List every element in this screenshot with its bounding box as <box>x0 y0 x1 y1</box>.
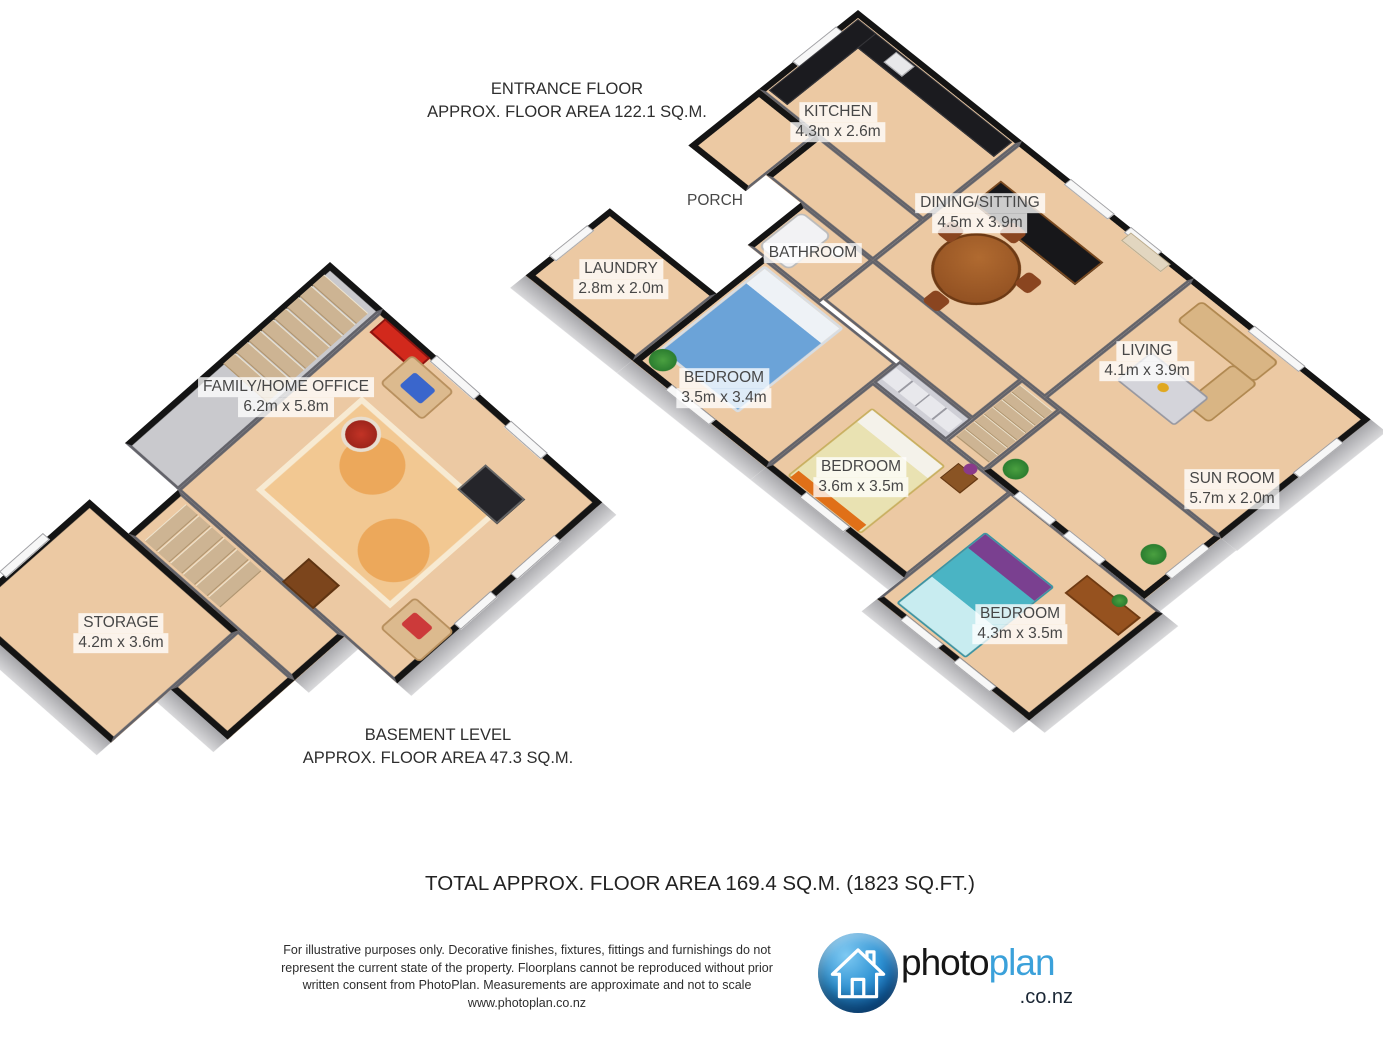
sunroom-label: SUN ROOM5.7m x 2.0m <box>1184 469 1279 509</box>
entrance-floor-title: ENTRANCE FLOOR <box>427 78 707 101</box>
entrance-floor-header: ENTRANCE FLOOR APPROX. FLOOR AREA 122.1 … <box>427 78 707 124</box>
laundry-label: LAUNDRY2.8m x 2.0m <box>573 259 668 299</box>
website-link[interactable]: www.photoplan.co.nz <box>281 995 773 1013</box>
bedroom1-label: BEDROOM3.5m x 3.4m <box>676 368 771 408</box>
storage-label: STORAGE4.2m x 3.6m <box>73 613 168 653</box>
bedroom2-label: BEDROOM3.6m x 3.5m <box>813 457 908 497</box>
brand-suffix: .co.nz <box>901 986 1073 1009</box>
kitchen-label: KITCHEN4.3m x 2.6m <box>790 102 885 142</box>
brand-photo: photo <box>901 942 989 983</box>
disclaimer-line-2: represent the current state of the prope… <box>281 960 773 978</box>
photoplan-logo-icon <box>818 933 898 1013</box>
house-icon <box>826 941 890 1005</box>
porch-label: PORCH <box>682 191 748 211</box>
disclaimer-text: For illustrative purposes only. Decorati… <box>281 942 773 1012</box>
basement-level-area: APPROX. FLOOR AREA 47.3 SQ.M. <box>303 747 574 770</box>
photoplan-wordmark: photoplan <box>901 942 1055 984</box>
entrance-floor-area: APPROX. FLOOR AREA 122.1 SQ.M. <box>427 101 707 124</box>
brand-plan: plan <box>989 942 1055 983</box>
family-home-office-label: FAMILY/HOME OFFICE6.2m x 5.8m <box>198 377 374 417</box>
disclaimer-line-3: written consent from PhotoPlan. Measurem… <box>281 977 773 995</box>
bedroom3-label: BEDROOM4.3m x 3.5m <box>972 604 1067 644</box>
bathroom-label: BATHROOM <box>764 243 862 263</box>
basement-level-title: BASEMENT LEVEL <box>303 724 574 747</box>
dining-sitting-label: DINING/SITTING4.5m x 3.9m <box>915 193 1045 233</box>
living-label: LIVING4.1m x 3.9m <box>1099 341 1194 381</box>
total-floor-area: TOTAL APPROX. FLOOR AREA 169.4 SQ.M. (18… <box>425 872 975 896</box>
basement-level-header: BASEMENT LEVEL APPROX. FLOOR AREA 47.3 S… <box>303 724 574 770</box>
disclaimer-line-1: For illustrative purposes only. Decorati… <box>281 942 773 960</box>
